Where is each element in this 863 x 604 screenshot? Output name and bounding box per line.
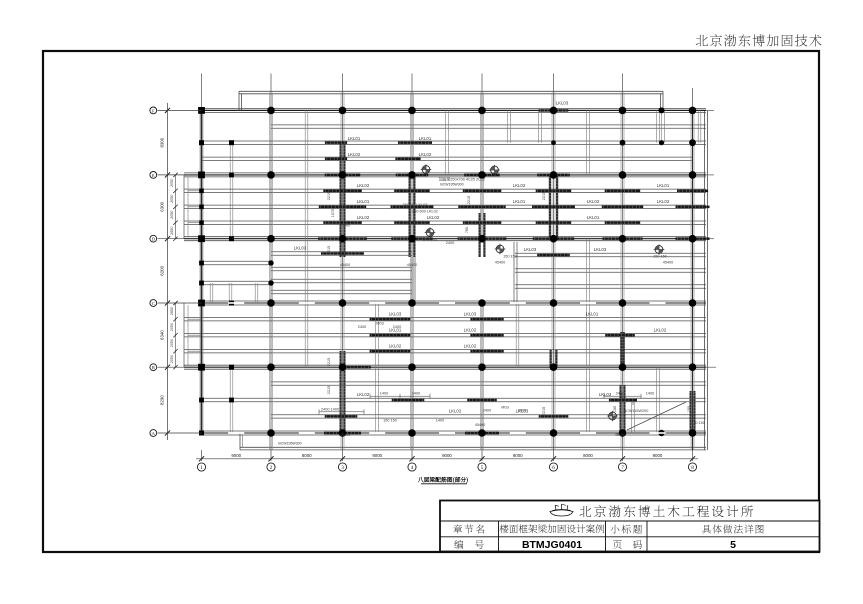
svg-text:BCW115W200: BCW115W200 (624, 409, 649, 413)
svg-text:2400: 2400 (518, 409, 526, 413)
svg-text:150 150: 150 150 (503, 255, 517, 259)
svg-text:1075: 1075 (331, 209, 335, 217)
svg-text:BTMJG0401: BTMJG0401 (522, 539, 582, 551)
svg-text:LKL02: LKL02 (513, 183, 526, 188)
svg-text:LKL02: LKL02 (357, 392, 370, 397)
svg-text:LKL02: LKL02 (348, 152, 361, 157)
svg-text:8200: 8200 (160, 265, 165, 275)
svg-text:2400: 2400 (412, 392, 420, 396)
svg-text:2050: 2050 (170, 323, 174, 331)
svg-text:LKL02: LKL02 (449, 409, 462, 414)
svg-text:9000: 9000 (653, 453, 663, 458)
svg-text:2215: 2215 (327, 192, 331, 200)
svg-text:LKL03: LKL03 (556, 101, 569, 106)
svg-text:BCW195W300: BCW195W300 (278, 442, 301, 446)
svg-text:E: E (152, 173, 155, 178)
svg-text:2: 2 (270, 465, 273, 471)
svg-text:LKL03: LKL03 (464, 311, 477, 316)
svg-text:6340: 6340 (160, 330, 165, 340)
svg-text:LKL03: LKL03 (389, 311, 402, 316)
svg-text:45400: 45400 (663, 261, 674, 265)
svg-text:45400: 45400 (475, 423, 486, 427)
svg-text:2650: 2650 (170, 307, 174, 315)
svg-text:2215: 2215 (327, 246, 331, 254)
svg-text:1400: 1400 (646, 392, 654, 396)
svg-text:760: 760 (465, 227, 469, 233)
svg-text:2050: 2050 (170, 195, 174, 203)
svg-text:LKL02: LKL02 (464, 343, 477, 348)
svg-text:LKL01: LKL01 (419, 136, 432, 141)
svg-text:45400: 45400 (340, 433, 351, 437)
svg-text:9000: 9000 (442, 453, 452, 458)
svg-text:1: 1 (200, 465, 203, 471)
svg-text:150 150: 150 150 (691, 421, 705, 425)
svg-text:45400: 45400 (340, 224, 351, 228)
svg-text:LKL02: LKL02 (654, 327, 667, 332)
svg-text:LKL03: LKL03 (594, 247, 607, 252)
svg-text:150 150: 150 150 (653, 255, 667, 259)
svg-text:4: 4 (411, 465, 414, 471)
svg-text:45400: 45400 (495, 261, 506, 265)
svg-text:150: 150 (613, 406, 617, 412)
svg-text:LKL01: LKL01 (586, 311, 599, 316)
svg-text:LKL02: LKL02 (357, 183, 370, 188)
svg-text:8000: 8000 (583, 453, 593, 458)
svg-text:9000: 9000 (231, 453, 241, 458)
svg-text:9000: 9000 (372, 453, 382, 458)
svg-text:45400: 45400 (615, 433, 626, 437)
svg-text:200600 LKL03: 200600 LKL03 (403, 203, 428, 207)
svg-text:2400: 2400 (616, 392, 624, 396)
svg-text:8290: 8290 (160, 395, 165, 405)
svg-text:5: 5 (481, 465, 484, 471)
svg-text:7: 7 (621, 465, 624, 471)
svg-text:2215: 2215 (327, 386, 331, 394)
svg-text:2050: 2050 (170, 211, 174, 219)
svg-text:5: 5 (730, 539, 736, 551)
svg-text:2400: 2400 (483, 409, 491, 413)
svg-text:LKL02: LKL02 (427, 215, 440, 220)
svg-text:240 240: 240 240 (423, 238, 437, 242)
svg-text:LKL03: LKL03 (524, 247, 537, 252)
svg-text:2215: 2215 (542, 192, 546, 200)
svg-text:2400: 2400 (358, 325, 366, 329)
svg-text:6: 6 (552, 465, 555, 471)
svg-text:LKL03: LKL03 (294, 246, 307, 251)
svg-text:BCW195W300: BCW195W300 (440, 183, 463, 187)
svg-text:LKL01: LKL01 (657, 183, 670, 188)
svg-text:C: C (152, 301, 155, 306)
svg-text:9000: 9000 (513, 453, 523, 458)
svg-text:LKL02: LKL02 (419, 152, 432, 157)
svg-text:2050: 2050 (170, 339, 174, 347)
svg-text:8300: 8300 (160, 137, 165, 147)
svg-text:6300: 6300 (160, 201, 165, 211)
svg-text:LKL03: LKL03 (599, 392, 612, 397)
svg-text:2650: 2650 (170, 227, 174, 235)
svg-text:2400: 2400 (393, 325, 401, 329)
svg-text:2050: 2050 (170, 355, 174, 363)
svg-text:LKL02: LKL02 (464, 327, 477, 332)
svg-text:45400: 45400 (340, 263, 351, 267)
svg-text:2050: 2050 (170, 179, 174, 187)
svg-text:2215: 2215 (542, 407, 546, 415)
svg-text:LKL01: LKL01 (348, 136, 361, 141)
svg-text:LKL01: LKL01 (587, 215, 600, 220)
svg-text:LKL02: LKL02 (657, 199, 670, 204)
svg-text:8: 8 (691, 465, 694, 471)
svg-text:2215: 2215 (467, 196, 471, 204)
svg-text:2400: 2400 (446, 241, 454, 245)
svg-text:2215: 2215 (327, 358, 331, 366)
svg-text:3: 3 (341, 465, 344, 471)
svg-text:LKL01: LKL01 (513, 199, 526, 204)
svg-text:LKL01: LKL01 (357, 199, 370, 204)
svg-text:45400: 45400 (407, 263, 418, 267)
svg-text:150 150: 150 150 (383, 419, 397, 423)
svg-text:D: D (152, 237, 155, 242)
svg-text:200 600 LKL02: 200 600 LKL02 (412, 210, 438, 214)
svg-text:1400: 1400 (380, 392, 388, 396)
svg-text:2400 1400: 2400 1400 (321, 408, 339, 412)
svg-text:LKL02: LKL02 (389, 343, 402, 348)
svg-text:150: 150 (687, 406, 691, 412)
svg-text:LKL02: LKL02 (587, 199, 600, 204)
svg-text:8000: 8000 (302, 453, 312, 458)
svg-text:M03: M03 (501, 406, 508, 410)
svg-text:LKL02: LKL02 (357, 215, 370, 220)
svg-text:M03: M03 (376, 322, 383, 326)
svg-text:B: B (152, 365, 155, 370)
svg-text:1400: 1400 (436, 419, 444, 423)
svg-text:加固梁250x700 4C25 2C22: 加固梁250x700 4C25 2C22 (439, 177, 485, 182)
